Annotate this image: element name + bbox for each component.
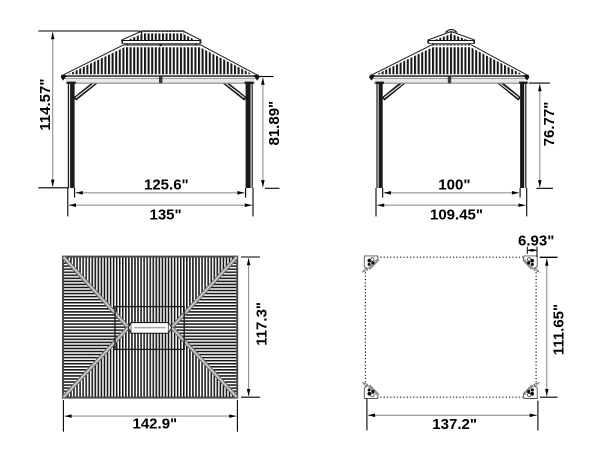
svg-text:81.89": 81.89" bbox=[266, 101, 283, 146]
svg-text:135": 135" bbox=[150, 207, 182, 224]
svg-text:142.9": 142.9" bbox=[133, 415, 178, 432]
svg-text:137.2": 137.2" bbox=[432, 416, 477, 433]
svg-text:100": 100" bbox=[438, 177, 470, 194]
svg-text:111.65": 111.65" bbox=[550, 304, 567, 355]
svg-text:6.93": 6.93" bbox=[518, 232, 554, 249]
svg-text:125.6": 125.6" bbox=[144, 177, 189, 194]
svg-text:117.3": 117.3" bbox=[253, 302, 270, 346]
svg-text:76.77": 76.77" bbox=[541, 102, 558, 147]
svg-text:109.45": 109.45" bbox=[430, 207, 483, 224]
svg-text:114.57": 114.57" bbox=[37, 79, 54, 131]
